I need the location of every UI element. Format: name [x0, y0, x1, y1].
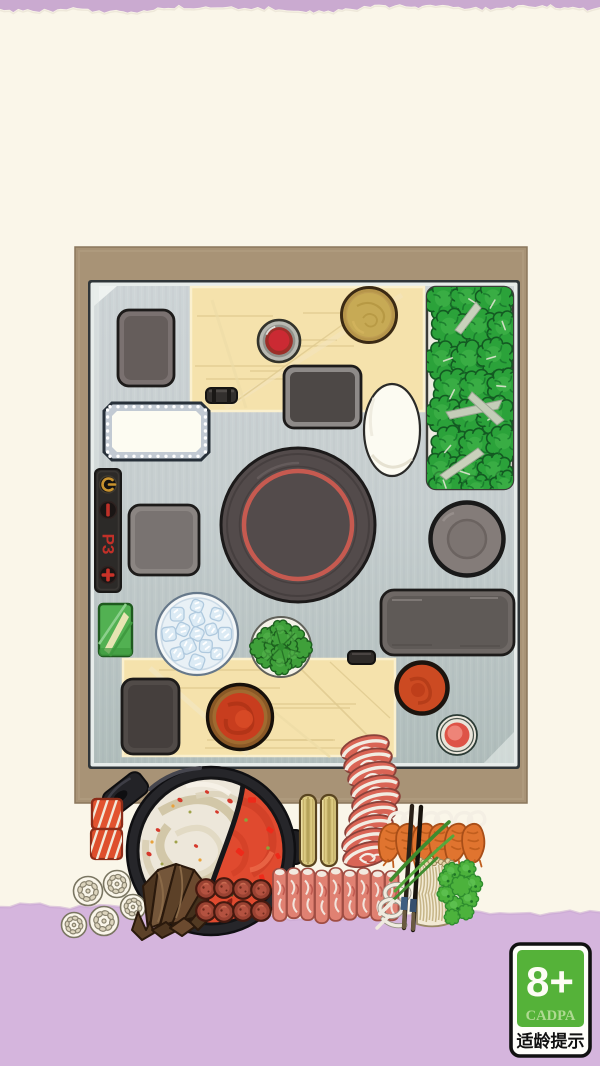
svg-text:P3: P3: [99, 534, 118, 555]
svg-text:CADPA: CADPA: [526, 1008, 576, 1024]
svg-text:8+: 8+: [526, 958, 574, 1005]
svg-text:适龄提示: 适龄提示: [517, 1031, 585, 1051]
